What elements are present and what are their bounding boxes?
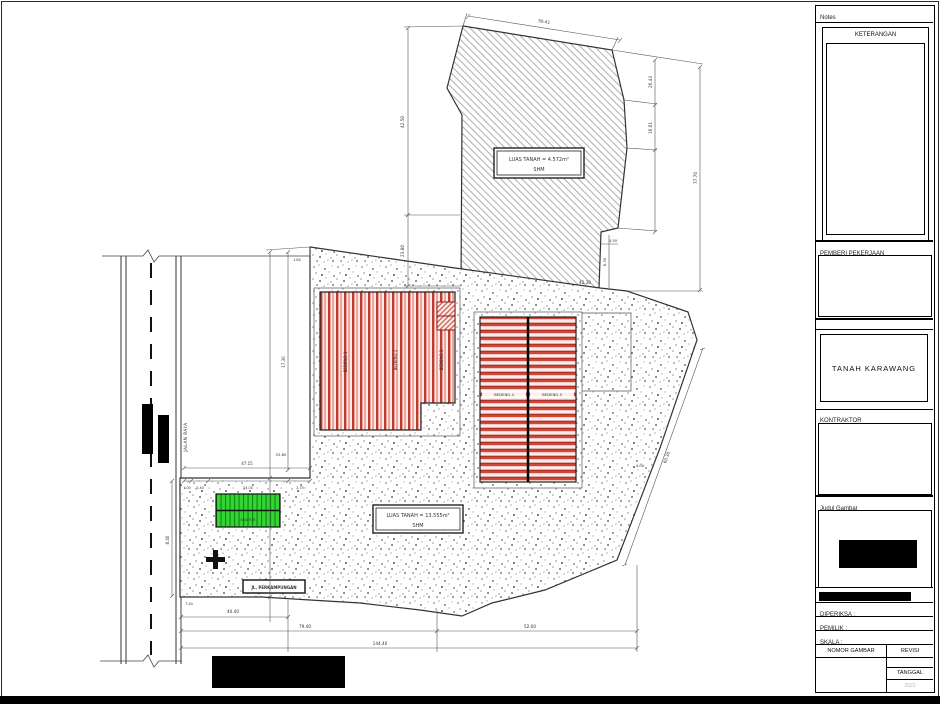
project-title: TANAH KARAWANG: [820, 334, 928, 402]
svg-text:56.41: 56.41: [538, 18, 551, 25]
road-redactions: [142, 404, 169, 463]
keterangan-label: KETERANGAN: [823, 28, 928, 43]
building-label: BEDENG 2: [393, 349, 398, 370]
svg-text:16.01: 16.01: [648, 122, 653, 134]
kontraktor-box: [818, 423, 932, 495]
svg-text:42.30: 42.30: [579, 280, 591, 285]
building-bedeng-right: BEDENG 4 BEDENG 5: [480, 317, 576, 482]
road-name-label: JALAN RAYA: [183, 422, 188, 452]
svg-text:6.30: 6.30: [602, 257, 607, 266]
svg-text:42.50: 42.50: [400, 116, 405, 128]
svg-text:77.70: 77.70: [693, 172, 698, 184]
redaction-bar: [819, 592, 911, 601]
upper-parcel-label: LUAS TANAH = 4.572m² SHM: [494, 148, 584, 178]
keterangan-box: KETERANGAN: [822, 27, 929, 241]
building-label: KANTOR: [241, 518, 256, 522]
kontraktor-header: KONTRAKTOR: [816, 409, 933, 423]
project-section: TANAH KARAWANG: [816, 327, 933, 410]
building-label: BEDENG 3: [439, 349, 444, 370]
revisi-cell: [887, 658, 933, 667]
redaction-bar: [158, 415, 169, 463]
building-label: BEDENG 1: [343, 351, 348, 372]
svg-text:7.40: 7.40: [185, 602, 193, 606]
tanggal-label: TANGGAL: [887, 667, 933, 680]
svg-text:47.15: 47.15: [241, 461, 253, 466]
notes-row: Notes: [816, 6, 933, 23]
svg-text:5.40: 5.40: [196, 486, 204, 490]
svg-text:52.00: 52.00: [524, 624, 536, 629]
svg-text:2.75: 2.75: [296, 486, 304, 490]
street-name-text: JL. PERKAMPUNGAN: [250, 585, 296, 590]
judul-gambar-box: [818, 510, 932, 588]
road: [100, 250, 310, 667]
redaction-box: [839, 540, 917, 568]
redacted-row: [816, 587, 933, 603]
nomor-gambar-cell: [816, 658, 887, 692]
svg-text:24.00: 24.00: [243, 486, 253, 490]
redaction-box: [212, 656, 345, 688]
skala-row: SKALA :: [816, 630, 933, 645]
keterangan-content-area: [826, 43, 925, 235]
diperiksa-row: DIPERIKSA :: [816, 602, 933, 617]
pemberi-pekerjaan-box: [818, 255, 932, 317]
svg-text:4.00: 4.00: [636, 463, 645, 468]
pemilik-row: PEMILIK :: [816, 616, 933, 631]
street-label: JL. PERKAMPUNGAN: [243, 580, 305, 593]
svg-text:79.40: 79.40: [299, 624, 311, 629]
svg-text:60.30: 60.30: [662, 451, 671, 464]
luas-tanah-text: LUAS TANAH = 4.572m²: [509, 157, 569, 163]
svg-text:1.00: 1.00: [183, 486, 191, 490]
svg-text:25.80: 25.80: [276, 452, 287, 457]
svg-text:26.44: 26.44: [648, 76, 653, 88]
building-label: BEDENG 5: [542, 392, 562, 397]
bottom-border-band: [0, 696, 940, 704]
title-block: Notes KETERANGAN PEMBERI PEKERJAAN TANAH…: [815, 5, 935, 693]
svg-text:40.40: 40.40: [227, 609, 239, 614]
svg-text:144.40: 144.40: [373, 641, 388, 646]
site-plan-drawing: JALAN RAYA BEDENG 1 BEDENG 2 BEDENG 3 BE…: [0, 0, 940, 704]
notes-label: Notes: [816, 15, 836, 21]
building-kantor: KANTOR: [216, 494, 280, 527]
nomor-revisi-header: NOMOR GAMBAR REVISI: [816, 644, 933, 658]
shm-text: SHM: [412, 523, 423, 529]
svg-text:23.80: 23.80: [400, 245, 405, 257]
building-label: BEDENG 4: [494, 392, 514, 397]
luas-tanah-text: LUAS TANAH = 13.555m²: [386, 513, 449, 519]
lower-parcel-label: LUAS TANAH = 13.555m² SHM: [373, 505, 463, 533]
shm-text: SHM: [533, 167, 544, 173]
title-block-bottom: TANGGAL 2021: [816, 657, 933, 692]
svg-text:1.80: 1.80: [293, 258, 301, 262]
utility-box: [437, 302, 455, 330]
redaction-bar: [142, 404, 153, 454]
revisi-tanggal-cells: TANGGAL 2021: [887, 658, 933, 692]
svg-text:4.50: 4.50: [609, 238, 618, 243]
tanggal-value: 2021: [887, 680, 933, 692]
svg-text:17.30: 17.30: [281, 356, 286, 368]
svg-text:8.40: 8.40: [165, 535, 170, 544]
